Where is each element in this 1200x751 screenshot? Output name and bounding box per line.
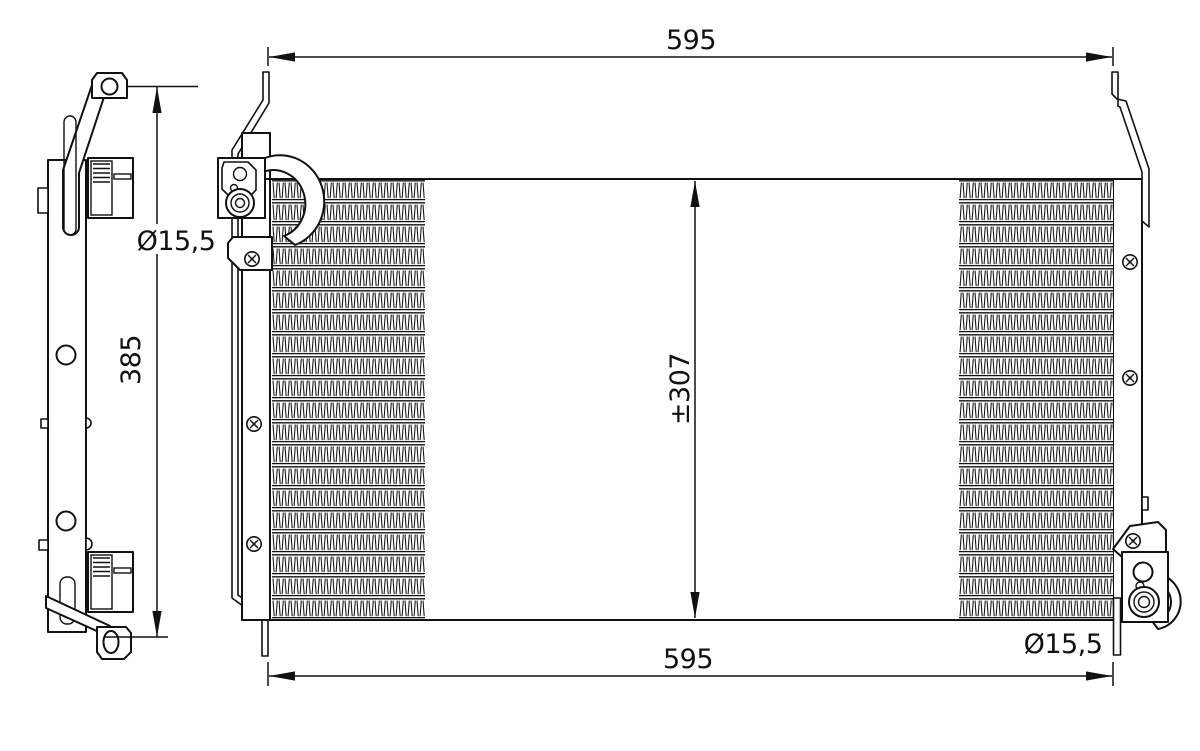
right-plate-nub: [1142, 497, 1148, 510]
dim-label-left-hole-diameter: Ø15,5: [137, 226, 216, 257]
screw-head: [1126, 534, 1140, 548]
condenser-drawing: Ø15,5 385: [0, 0, 1200, 751]
front-view: [218, 72, 1181, 656]
screw-head: [245, 252, 259, 266]
arrowhead-right: [1086, 52, 1112, 61]
fin-core-left: [272, 180, 425, 620]
arrowhead-down: [152, 611, 161, 637]
dim-label-core-height: ±307: [665, 353, 696, 425]
arrowhead-left: [269, 671, 295, 680]
dim-label-side-height: 385: [116, 335, 147, 385]
arrowhead-right: [1086, 671, 1112, 680]
side-bump-mid: [86, 418, 91, 428]
side-bottom-connector: [88, 552, 133, 612]
arrowhead-up: [152, 87, 161, 113]
fin-core-right: [959, 180, 1113, 620]
side-nub-top: [38, 188, 48, 213]
dim-label-bottom-width: 595: [663, 644, 713, 675]
dim-label-top-width: 595: [666, 25, 716, 56]
screw-head: [247, 417, 261, 431]
technical-drawing-page: Ø15,5 385: [0, 0, 1200, 751]
side-nub-low: [39, 540, 48, 550]
screw-head: [1123, 255, 1137, 269]
arrowhead-down: [690, 592, 699, 618]
port-outer-ring: [226, 189, 254, 217]
side-bump-low: [86, 538, 92, 550]
screw-head: [247, 537, 261, 551]
arrowhead-left: [269, 52, 295, 61]
arrowhead-up: [690, 181, 699, 207]
outlet-fitting-bottom-right: [1113, 522, 1181, 655]
bracket-leg: [1114, 598, 1121, 655]
screw-head: [1123, 371, 1137, 385]
dim-label-right-hole-diameter: Ø15,5: [1024, 629, 1103, 660]
side-nub-mid: [41, 419, 48, 428]
side-top-connector: [88, 158, 133, 218]
